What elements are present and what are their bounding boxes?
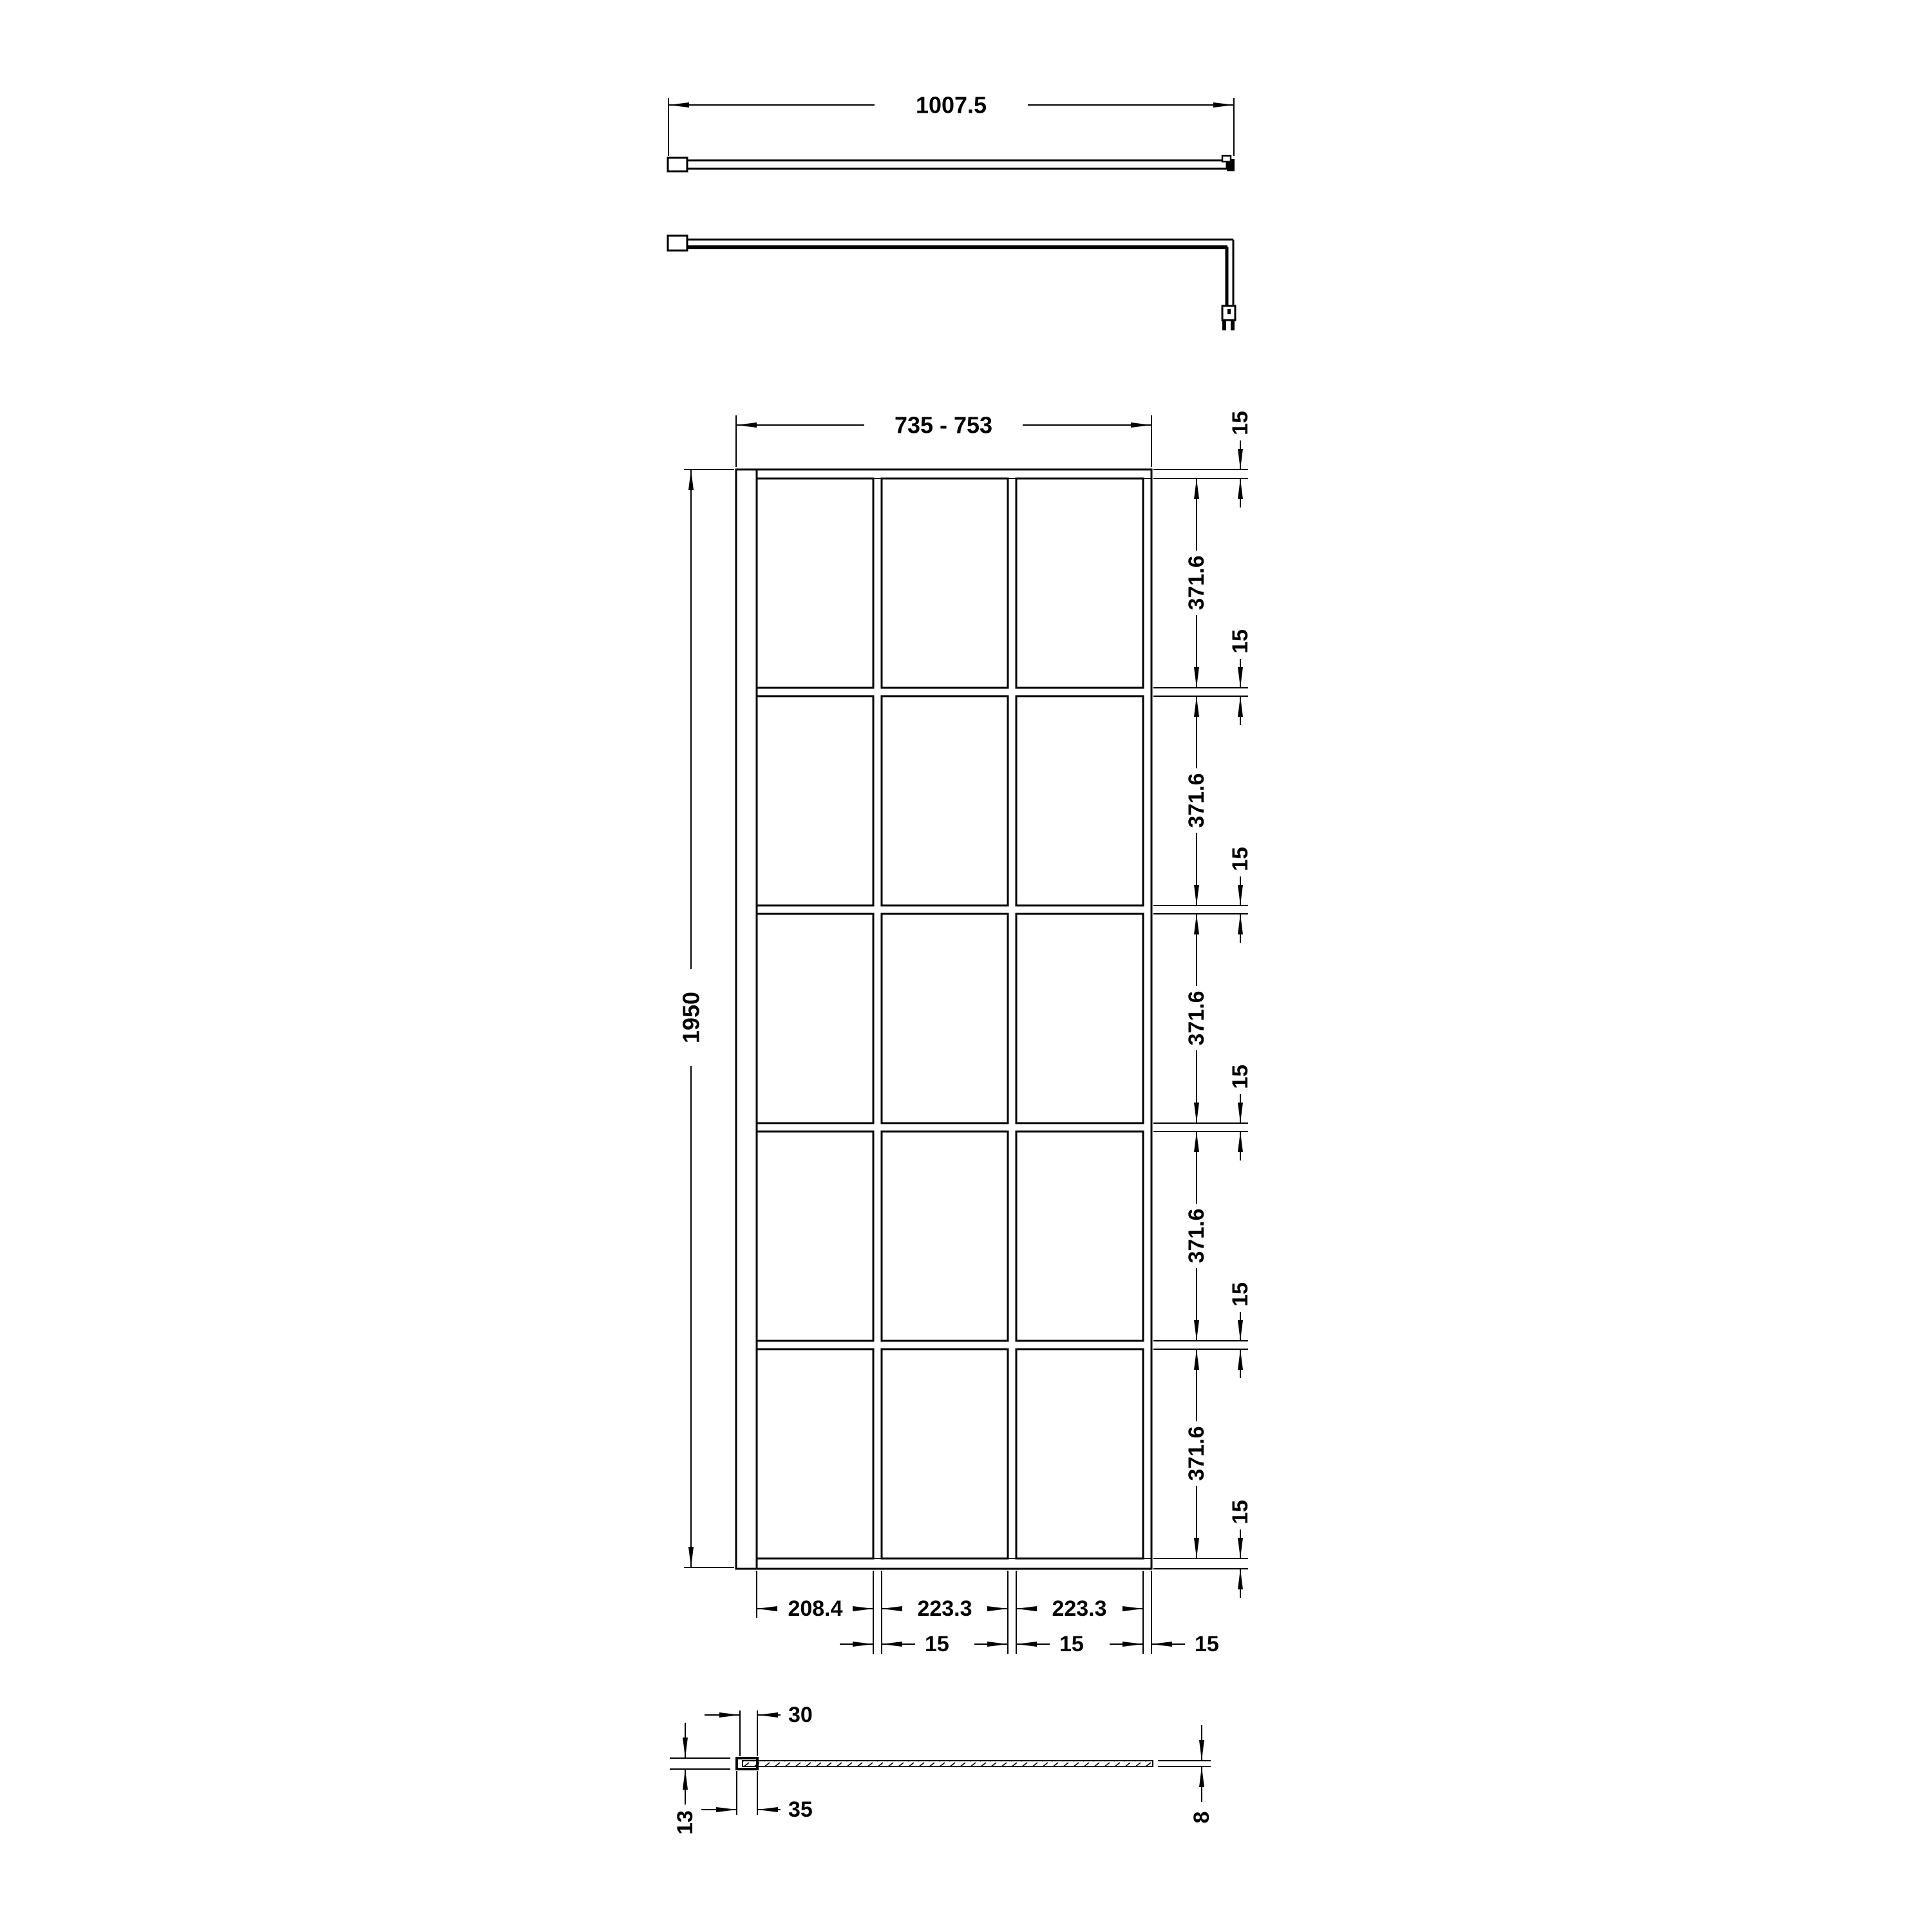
channel-outer-width-label: 35: [788, 1797, 813, 1822]
rail-thickness-label: 15: [1228, 1500, 1253, 1524]
mullion-width-label: 15: [1195, 1632, 1219, 1656]
pane-width-label: 223.3: [917, 1596, 972, 1621]
rail-thickness-label: 15: [1228, 411, 1253, 435]
mullion-width-label: 15: [1059, 1632, 1084, 1656]
pane-height-label: 371.6: [1184, 773, 1209, 828]
overall-height-label: 1950: [678, 992, 705, 1043]
rail-thickness-label: 15: [1228, 1065, 1253, 1089]
support-bar-length-label: 1007.5: [916, 92, 987, 118]
support-bar-plan-wall-block: [668, 236, 687, 251]
rail-thickness-label: 15: [1228, 629, 1253, 654]
support-bar-end-tab: [1222, 156, 1231, 162]
pane-height-label: 371.6: [1184, 990, 1209, 1045]
pane-width-label: 208.4: [788, 1596, 842, 1621]
glass-clamp-leg-left: [1222, 320, 1226, 330]
channel-depth-label: 13: [673, 1810, 697, 1835]
channel-inner-width-label: 30: [788, 1703, 813, 1727]
glass-clamp-screw: [1227, 309, 1231, 314]
pane-width-label: 223.3: [1052, 1596, 1106, 1621]
rail-thickness-label: 15: [1228, 847, 1253, 871]
glass-section: [743, 1761, 1153, 1766]
pane-height-label: 371.6: [1184, 1208, 1209, 1263]
support-bar-wall-block: [668, 158, 687, 171]
rail-thickness-label: 15: [1228, 1282, 1253, 1307]
overall-width-label: 735 - 753: [895, 412, 992, 439]
pane-height-label: 371.6: [1184, 1426, 1209, 1481]
glass-clamp-leg-right: [1231, 320, 1235, 330]
glass-thickness-label: 8: [1189, 1812, 1214, 1824]
pane-height-label: 371.6: [1184, 555, 1209, 610]
paper-background: [0, 0, 1932, 1932]
technical-drawing-canvas: 1007.5: [0, 0, 1932, 1932]
mullion-width-label: 15: [925, 1632, 949, 1656]
